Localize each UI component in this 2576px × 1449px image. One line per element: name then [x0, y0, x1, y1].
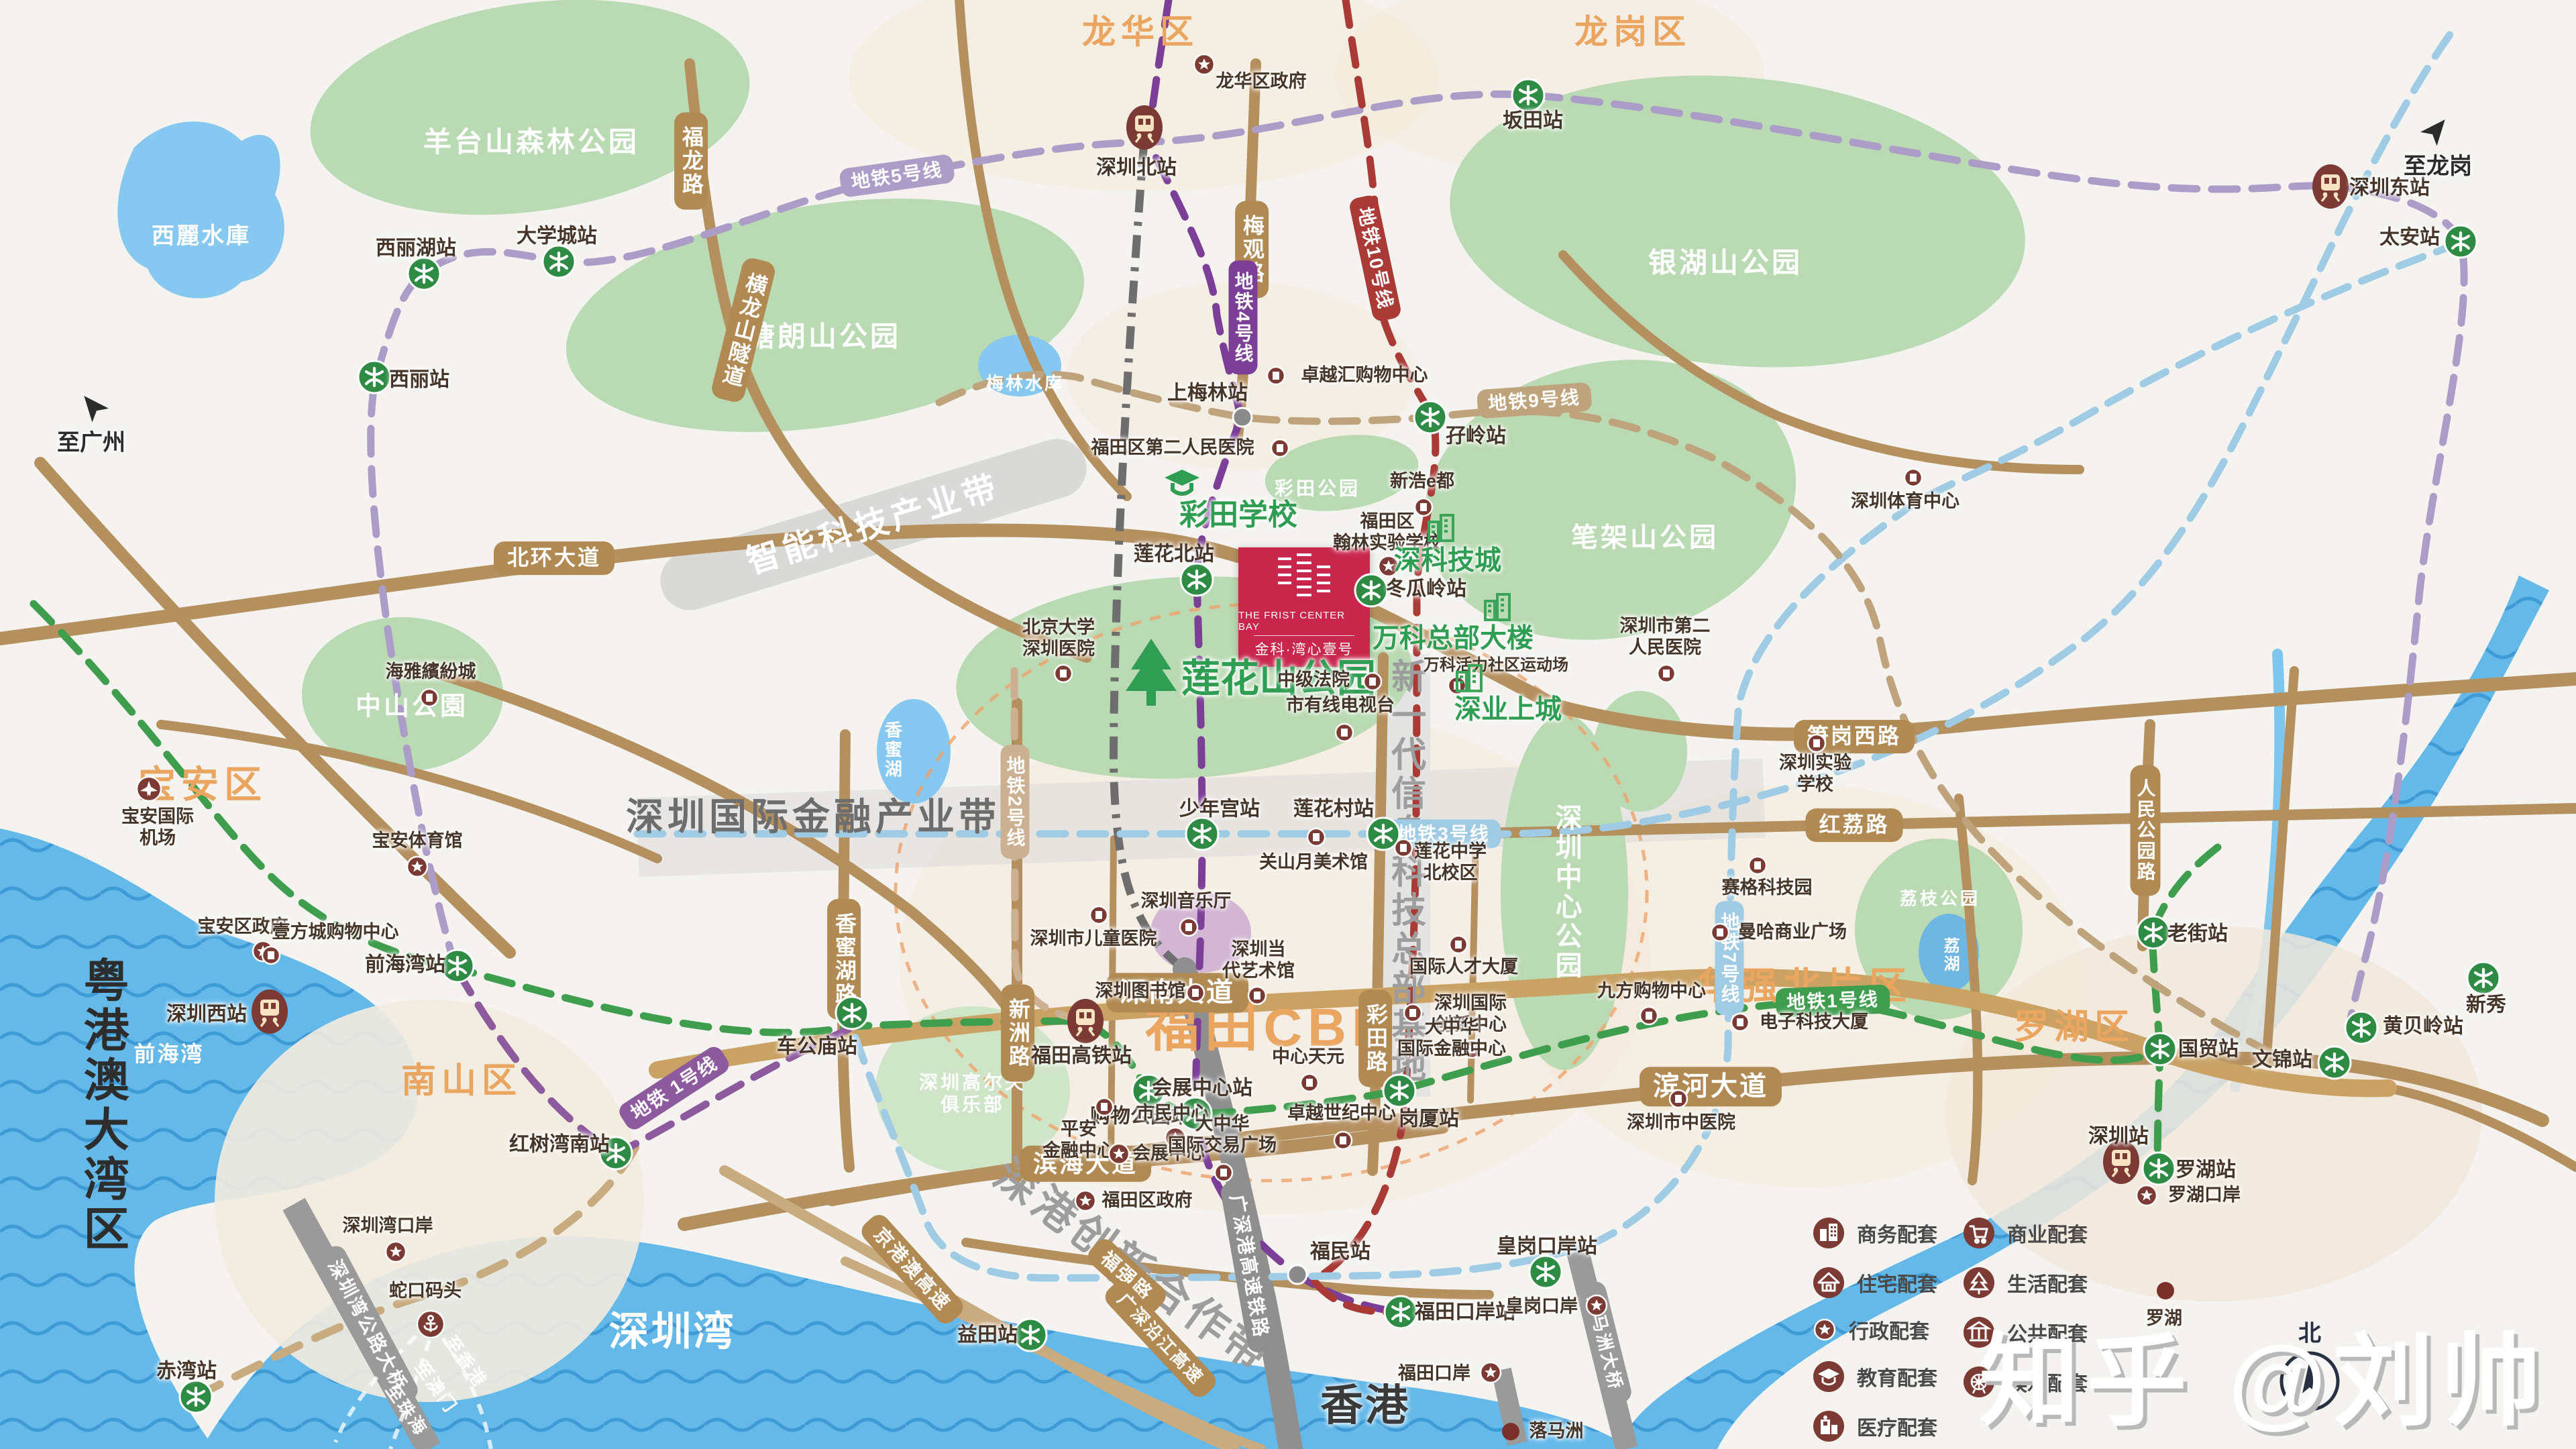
road-label: 福龙路: [674, 113, 708, 210]
park-label: 银湖山公园: [1648, 246, 1803, 280]
bldg-icon: [1423, 511, 1459, 547]
road-label: 红荔路: [1805, 808, 1902, 842]
poi-label: 深圳当 代艺术馆: [1222, 939, 1295, 982]
watermark: 知乎 @刘帅: [1979, 1300, 2548, 1446]
station-label: 莲花北站: [1134, 542, 1214, 566]
poi-label: 宝安国际 机场: [121, 806, 194, 849]
road-label: 滨河大道: [1640, 1067, 1782, 1106]
district-label: 龙岗区: [1574, 13, 1691, 52]
metro-station-icon: [1383, 1294, 1419, 1330]
star-legend-icon: [1811, 1316, 1838, 1343]
poi-icon: [1265, 364, 1287, 387]
anchor-icon: [414, 1307, 447, 1341]
metro-station-icon: [1184, 816, 1220, 852]
legend-item-label: 商务配套: [1857, 1218, 1937, 1248]
road-label: 北环大道: [494, 541, 614, 575]
poi-label: 电子科技大厦: [1760, 1012, 1868, 1033]
cart-legend-icon: [1962, 1216, 1996, 1250]
poi-icon: [1709, 921, 1731, 944]
legend-item: 生活配套: [1962, 1265, 2088, 1300]
legend-item: 住宅配套: [1811, 1265, 1937, 1300]
poi-icon: [1184, 981, 1207, 1004]
poi-label: 深圳体育中心: [1851, 491, 1960, 513]
station-label: 新秀: [2466, 993, 2506, 1016]
poi-label: 中级法院: [1277, 669, 1350, 691]
reddot-icon: [2154, 1279, 2177, 1302]
reddot-icon: [1499, 1420, 1522, 1443]
station-label: 罗湖站: [2176, 1158, 2236, 1181]
poi-label: 北京大学 深圳医院: [1022, 617, 1095, 660]
station-label: 坂田站: [1503, 109, 1563, 132]
metro-station-icon: [541, 244, 577, 280]
water-label: 香蜜湖: [882, 721, 903, 780]
poi-label: 深科技城: [1394, 545, 1501, 576]
metro-station-icon: [356, 359, 392, 395]
station-label: 深圳北站: [1096, 156, 1177, 179]
station-label: 深圳西站: [166, 1002, 247, 1026]
station-label: 西丽站: [389, 368, 449, 391]
poi-label: 罗湖口岸: [2168, 1185, 2241, 1206]
park-label: 深圳中心公园: [1550, 804, 1581, 981]
poi-label: 深圳市儿童医院: [1030, 928, 1157, 950]
park-label: 彩田公园: [1275, 477, 1360, 499]
metro-station-icon: [406, 256, 442, 292]
metro-station-icon: [834, 995, 870, 1031]
station-label: 少年宫站: [1179, 797, 1260, 820]
park-small-east: [1593, 691, 1687, 812]
poi-label: 福田区政府: [1102, 1190, 1193, 1212]
metro-line-label: 地铁7号线: [1715, 901, 1743, 1015]
road-fuqiang: [966, 1242, 1489, 1295]
poi-label: 国际人才大厦: [1409, 957, 1518, 978]
poi-icon: [1269, 437, 1291, 460]
poi-icon: [1298, 1071, 1321, 1094]
poi-icon: [1655, 662, 1678, 685]
edu-legend-icon: [1811, 1359, 1846, 1394]
poi-label: 万科活力社区运动场: [1424, 656, 1568, 675]
bldg-icon: [1451, 661, 1487, 697]
train-station-icon: [1064, 996, 1107, 1046]
station-label: 老街站: [2167, 922, 2228, 945]
poi-label: 关山月美术馆: [1259, 852, 1368, 873]
legend-item: 教育配套: [1811, 1359, 1937, 1394]
legend-item: 行政配套: [1811, 1315, 1937, 1344]
poi-icon: [1212, 1161, 1235, 1184]
poi-label: 落马洲: [1529, 1421, 1584, 1442]
station-label: 红树湾南站: [509, 1132, 610, 1156]
station-label: 赤湾站: [156, 1359, 217, 1383]
poi-label: 曼哈商业广场: [1738, 922, 1847, 943]
train-station-icon: [2309, 161, 2352, 212]
station-label: 会展中心站: [1152, 1076, 1252, 1099]
poi-label: 中心天元: [1272, 1046, 1344, 1068]
station-label: 西丽湖站: [376, 236, 456, 260]
train-station-icon: [1123, 102, 1166, 153]
star-icon: [1583, 1292, 1610, 1319]
poi-icon: [1087, 904, 1110, 926]
station-label: 太安站: [2379, 225, 2440, 249]
home-legend-icon: [1811, 1265, 1846, 1300]
direction-label: 至龙岗: [2404, 153, 2472, 180]
legend-item-label: 教育配套: [1857, 1362, 1937, 1391]
station-label: 福民站: [1310, 1240, 1371, 1263]
park-label: 荔枝公园: [1900, 889, 1980, 910]
zone-label: 粤港澳大湾区: [75, 957, 129, 1254]
pine-tree-icon: [1114, 636, 1188, 716]
station-label: 深圳站: [2088, 1124, 2149, 1148]
star-icon: [1106, 1140, 1132, 1167]
poi-icon: [1729, 1011, 1752, 1034]
poi-icon: [1052, 662, 1075, 685]
station-label: 黄贝岭站: [2383, 1014, 2463, 1038]
station-label: 前海湾站: [365, 953, 445, 976]
metro-station-icon: [2142, 1031, 2178, 1067]
water-label: 香港: [1320, 1381, 1410, 1432]
metro-station-icon: [1412, 399, 1448, 435]
station-label: 冬瓜岭站: [1386, 577, 1466, 600]
legend-item: 商业配套: [1962, 1216, 2088, 1250]
poi-icon: [260, 944, 282, 967]
poi-icon: [1638, 1004, 1660, 1027]
poi-label: 万科总部大楼: [1373, 623, 1534, 654]
office-legend-icon: [1811, 1216, 1846, 1250]
poi-icon: [1177, 916, 1200, 938]
legend-column: 商务配套住宅配套行政配套教育配套医疗配套: [1811, 1216, 1937, 1444]
poi-label: 平安 金融中心: [1042, 1119, 1115, 1162]
interchange-dot-icon: [1230, 405, 1254, 429]
bldg-icon: [1479, 590, 1515, 626]
poi-label: 赛格科技园: [1722, 877, 1813, 899]
poi-icon: [1246, 984, 1269, 1007]
plane-icon: [133, 773, 164, 804]
station-label: 国贸站: [2178, 1037, 2239, 1061]
road-label: 新洲路: [1001, 985, 1034, 1082]
station-label: 皇岗口岸站: [1497, 1234, 1597, 1258]
park-label: 羊台山森林公园: [423, 125, 639, 159]
station-label: 岗厦站: [1399, 1107, 1459, 1130]
metro-station-icon: [2141, 1150, 2177, 1187]
metro-station-icon: [2343, 1010, 2379, 1046]
poi-label: 市有线电视台: [1286, 695, 1395, 716]
metro-line-label: 地铁2号线: [1000, 745, 1029, 859]
legend-item-label: 医疗配套: [1857, 1411, 1937, 1441]
legend-item: 商务配套: [1811, 1216, 1937, 1250]
hospital-legend-icon: [1811, 1409, 1846, 1444]
poi-label: 深圳湾口岸: [343, 1216, 433, 1237]
project-marker: THE FRIST CENTER BAY 金科·湾心壹号: [1238, 547, 1370, 667]
star-icon: [382, 1238, 409, 1265]
poi-label: 深圳市中医院: [1627, 1112, 1735, 1134]
metro-station-icon: [2135, 914, 2171, 951]
poi-label: 大中华 国际金融中心: [1397, 1017, 1506, 1060]
poi-label: 深圳音乐厅: [1141, 891, 1232, 912]
poi-label: 彩田学校: [1179, 498, 1297, 533]
water-label: 深圳湾: [609, 1309, 736, 1356]
poi-icon: [1392, 837, 1415, 859]
poi-label: 罗湖: [2146, 1308, 2182, 1330]
metro-line-label: 地铁4号线: [1228, 260, 1257, 374]
water-label: 西麗水庫: [152, 223, 251, 250]
park-label: 中山公園: [356, 692, 468, 722]
poi-label: 壹方城购物中心: [272, 922, 399, 943]
direction-label: 至广州: [57, 429, 125, 456]
poi-label: 深圳图书馆: [1095, 981, 1186, 1002]
poi-icon: [1361, 670, 1384, 693]
station-label: 莲花村站: [1293, 797, 1374, 820]
metro-station-icon: [178, 1379, 214, 1415]
metro-station-icon: [2316, 1044, 2353, 1081]
metro-station-icon: [1179, 561, 1215, 598]
metro-station-icon: [2443, 223, 2479, 260]
station-label: 车公庙站: [777, 1034, 857, 1058]
station-label: 福田口岸站: [1415, 1300, 1515, 1324]
poi-icon: [1305, 826, 1328, 849]
poi-icon: [1332, 1129, 1354, 1152]
road-label: 人民公园路: [2130, 765, 2160, 896]
project-name-en: THE FRIST CENTER BAY: [1238, 610, 1370, 633]
poi-label: 卓越世纪中心: [1287, 1103, 1396, 1124]
zone-label: 深圳国际金融产业带: [626, 795, 1000, 839]
train-station-icon: [248, 986, 291, 1037]
poi-icon: [1902, 466, 1925, 489]
map-canvas: THE FRIST CENTER BAY 金科·湾心壹号 商务配套住宅配套行政配…: [0, 0, 2576, 1449]
station-label: 福田高铁站: [1031, 1044, 1132, 1067]
park-label: 笔架山公园: [1571, 522, 1719, 553]
lake-xili: [117, 121, 284, 299]
legend-item-label: 商业配套: [2007, 1218, 2088, 1248]
poi-label: 皇岗口岸: [1505, 1296, 1578, 1318]
poi-label: 龙华区政府: [1216, 71, 1307, 93]
poi-label: 深圳市第二 人民医院: [1620, 616, 1711, 659]
star-icon: [1191, 51, 1218, 78]
legend-item-label: 住宅配套: [1857, 1268, 1937, 1297]
station-label: 上梅林站: [1167, 381, 1248, 405]
poi-label: 新浩e都: [1390, 471, 1454, 492]
star-icon: [2133, 1182, 2160, 1209]
station-label: 孖岭站: [1446, 424, 1506, 447]
poi-icon: [1333, 721, 1356, 744]
poi-label: 大中华 国际交易广场: [1168, 1114, 1277, 1157]
district-label: 龙华区: [1082, 13, 1199, 52]
poi-label: 九方购物中心: [1597, 981, 1706, 1002]
metro-station-icon: [1527, 1254, 1564, 1290]
tree-legend-icon: [1962, 1265, 1996, 1300]
poi-label: 蛇口码头: [389, 1281, 462, 1302]
project-logo-icon: [1274, 551, 1334, 607]
station-label: 益田站: [957, 1323, 1018, 1346]
metro-station-icon: [1510, 77, 1546, 113]
water-label: 前海湾: [133, 1042, 204, 1067]
legend-item-label: 行政配套: [1849, 1315, 1929, 1344]
poi-icon: [1093, 1095, 1116, 1118]
park-bijiashan: [1397, 326, 1822, 673]
legend-item-label: 生活配套: [2007, 1268, 2088, 1297]
station-label: 文锦站: [2252, 1048, 2312, 1071]
poi-icon: [1746, 854, 1769, 877]
star-icon: [1477, 1359, 1504, 1386]
poi-icon: [418, 686, 441, 709]
poi-label: 莲花中学 北校区: [1414, 841, 1487, 884]
poi-label: 卓越汇购物中心: [1301, 365, 1428, 386]
project-divider: [1254, 635, 1354, 636]
water-label: 梅林水库: [986, 374, 1064, 394]
school-icon: [1162, 465, 1202, 498]
interchange-dot-icon: [1285, 1263, 1309, 1287]
poi-label: 福田口岸: [1398, 1363, 1470, 1385]
water-label: 荔湖: [1940, 937, 1959, 973]
metro-station-icon: [1012, 1317, 1049, 1353]
district-label: 南山区: [401, 1061, 522, 1102]
park-label: 塘朗山公园: [747, 320, 901, 354]
poi-label: 深圳实验 学校: [1779, 753, 1851, 796]
legend-item: 医疗配套: [1811, 1409, 1937, 1444]
metro-station-icon: [2465, 960, 2502, 996]
station-label: 大学城站: [517, 224, 597, 248]
poi-icon: [1667, 1087, 1690, 1110]
star-icon: [404, 853, 431, 880]
poi-label: 海雅繽紛城: [386, 661, 476, 683]
poi-icon: [1447, 933, 1470, 956]
poi-label: 福田区第二人民医院: [1091, 437, 1254, 459]
star-icon: [1072, 1187, 1099, 1214]
poi-label: 深业上城: [1454, 694, 1562, 725]
poi-label: 宝安体育馆: [372, 830, 463, 852]
district-label: 罗湖区: [2014, 1007, 2135, 1048]
poi-icon: [1805, 732, 1828, 755]
